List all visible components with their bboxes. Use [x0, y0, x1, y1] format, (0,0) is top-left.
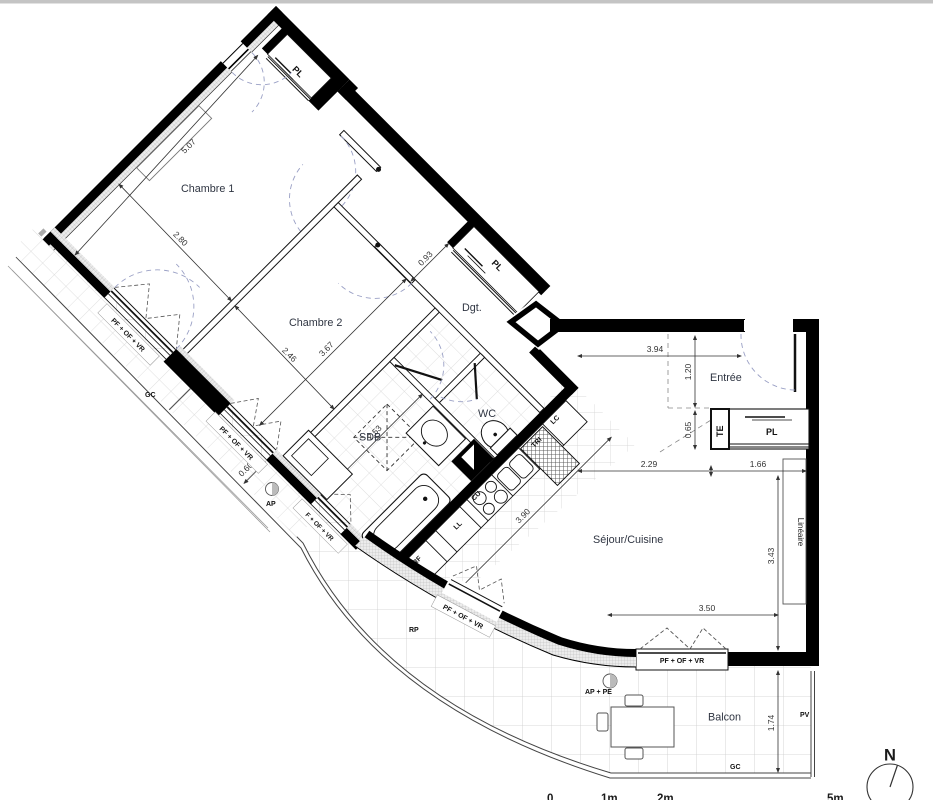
svg-text:1.20: 1.20 [683, 363, 693, 380]
svg-text:2.29: 2.29 [641, 459, 658, 469]
svg-text:0.65: 0.65 [683, 421, 693, 438]
svg-text:2m: 2m [657, 793, 674, 800]
svg-text:AP + PE: AP + PE [585, 689, 612, 696]
svg-text:PF + OF + VR: PF + OF + VR [660, 658, 704, 665]
svg-text:Balcon: Balcon [708, 712, 741, 724]
svg-text:PL: PL [766, 427, 778, 437]
svg-text:GC: GC [730, 764, 741, 771]
svg-text:PV: PV [800, 712, 810, 719]
svg-text:RP: RP [409, 627, 419, 634]
svg-text:3.94: 3.94 [647, 344, 664, 354]
svg-text:Séjour/Cuisine: Séjour/Cuisine [593, 534, 663, 546]
svg-text:1.66: 1.66 [750, 459, 767, 469]
svg-text:N: N [884, 747, 896, 765]
svg-text:Entrée: Entrée [710, 372, 742, 384]
svg-text:3.50: 3.50 [699, 603, 716, 613]
svg-text:AP: AP [266, 501, 276, 508]
svg-text:1m: 1m [601, 793, 618, 800]
svg-text:5m: 5m [827, 793, 844, 800]
svg-text:GC: GC [145, 392, 156, 399]
svg-text:Chambre 2: Chambre 2 [289, 317, 342, 329]
svg-text:TE: TE [715, 425, 725, 437]
svg-text:0: 0 [547, 793, 553, 800]
svg-text:WC: WC [478, 408, 496, 420]
svg-text:Chambre 1: Chambre 1 [181, 183, 234, 195]
svg-text:Dgt.: Dgt. [462, 302, 482, 314]
svg-text:SDB: SDB [359, 432, 381, 444]
svg-text:Linéaire: Linéaire [796, 518, 805, 547]
svg-text:3.43: 3.43 [766, 547, 776, 564]
svg-text:1.74: 1.74 [766, 714, 776, 731]
